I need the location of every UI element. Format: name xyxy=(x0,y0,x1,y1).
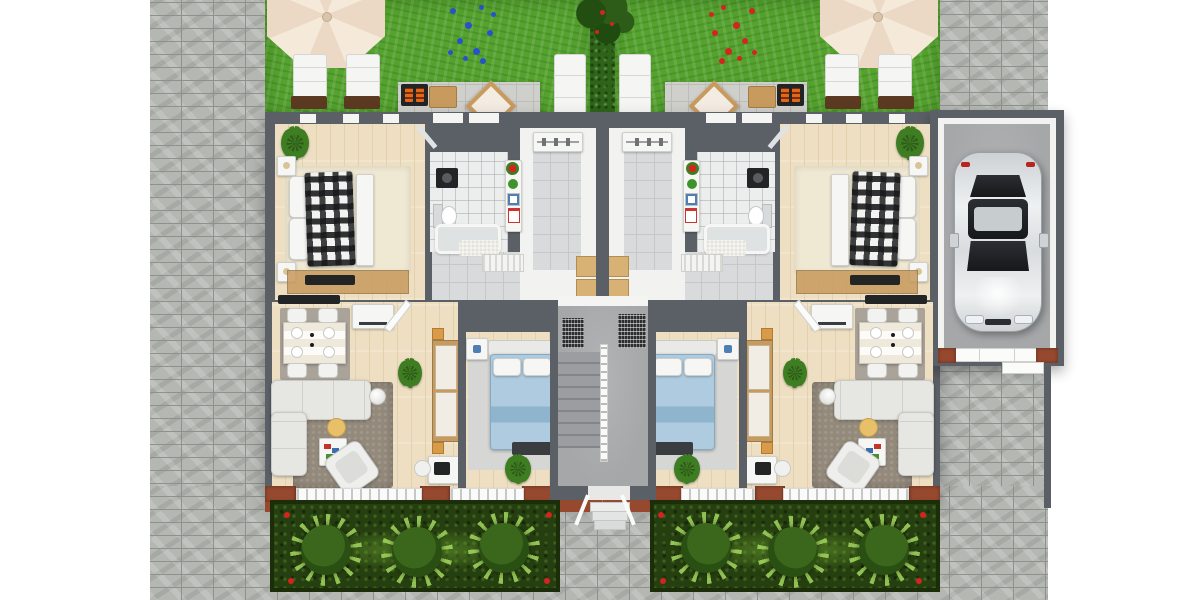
wardrobe-door xyxy=(435,345,457,390)
dining-chair xyxy=(287,308,307,323)
car-mirror xyxy=(1039,233,1049,248)
corner-sofa-leg xyxy=(271,412,307,476)
lounger-base xyxy=(878,96,914,109)
window-sill xyxy=(889,114,905,123)
storage-box xyxy=(761,328,773,340)
patio-door-frame xyxy=(469,113,499,123)
car-headlight xyxy=(1014,315,1033,324)
wood-side-table xyxy=(748,86,776,108)
potted-plant xyxy=(783,358,807,388)
plaid-blanket-bed xyxy=(304,171,355,267)
topiary-bush xyxy=(768,527,818,577)
accent-flower xyxy=(660,578,666,584)
lounger-base xyxy=(825,96,861,109)
stone-paving-top-right xyxy=(938,0,1048,118)
tv xyxy=(850,275,900,285)
table-lamp xyxy=(283,162,290,169)
armchair-cushion xyxy=(835,449,871,485)
dining-chair xyxy=(287,363,307,378)
garage xyxy=(930,110,1064,366)
bed-pillow xyxy=(896,218,916,260)
place-setting xyxy=(870,327,882,339)
accent-flower xyxy=(284,512,290,518)
place-setting xyxy=(902,327,914,339)
stair-handrail xyxy=(600,344,608,462)
laptop xyxy=(434,462,450,475)
wardrobe-shelf xyxy=(622,132,672,152)
window-sill xyxy=(300,114,316,123)
sun-lounger xyxy=(293,54,327,100)
desk-chair xyxy=(414,460,431,477)
accent-flower xyxy=(288,578,294,584)
car-roof-panel xyxy=(974,207,1022,231)
dining-chair xyxy=(898,363,918,378)
tomato-pot xyxy=(686,162,699,175)
dining-chair xyxy=(318,363,338,378)
storage-box xyxy=(432,442,444,454)
toilet-bowl xyxy=(748,206,764,226)
washing-machine xyxy=(436,168,458,188)
flower xyxy=(487,30,493,36)
flower xyxy=(491,12,496,17)
book xyxy=(324,444,331,449)
table-lamp xyxy=(915,162,922,169)
party-wall xyxy=(596,112,609,308)
bed-foot-bench xyxy=(356,174,374,266)
utensil-box xyxy=(685,193,698,206)
window-sill xyxy=(846,114,862,123)
nightstand xyxy=(717,338,739,360)
barbecue-grill xyxy=(401,84,428,106)
book xyxy=(874,444,881,449)
place-setting xyxy=(323,346,335,358)
blue-decor xyxy=(724,345,732,353)
car-windshield xyxy=(967,241,1029,271)
desk-chair xyxy=(774,460,791,477)
slatted-bench xyxy=(681,254,723,272)
potted-plant xyxy=(505,454,531,484)
tree xyxy=(572,0,636,48)
parasol-pole xyxy=(873,12,883,22)
flower xyxy=(473,48,480,55)
flower xyxy=(719,58,725,64)
wardrobe-shelf xyxy=(533,132,583,152)
topiary-bush xyxy=(479,523,529,573)
candle xyxy=(891,343,895,347)
nightstand xyxy=(277,156,296,176)
washer-door xyxy=(442,173,452,183)
wardrobe-door xyxy=(435,392,457,437)
barbecue-grill xyxy=(777,84,804,106)
bed-pillow xyxy=(654,358,682,376)
hedge-blossom xyxy=(600,10,605,15)
place-setting xyxy=(323,327,335,339)
wardrobe-door xyxy=(748,345,770,390)
front-garden-bed-left xyxy=(270,500,560,592)
place-setting xyxy=(291,346,303,358)
hanger xyxy=(659,138,663,146)
topiary-bush xyxy=(859,525,909,575)
boundary-fence xyxy=(1044,366,1051,508)
patio-door-frame xyxy=(706,113,736,123)
slatted-bench xyxy=(482,254,524,272)
recipe-card xyxy=(685,208,697,223)
tall-wardrobe xyxy=(745,340,773,442)
window-sill xyxy=(383,114,399,123)
car-roof xyxy=(968,199,1028,239)
armchair-cushion xyxy=(333,449,369,485)
car-grille xyxy=(985,319,1011,325)
entry-door-leaf xyxy=(606,256,629,277)
bed-pillow xyxy=(684,358,712,376)
grill-flames xyxy=(792,88,800,102)
side-table-yellow xyxy=(327,418,346,437)
hanger xyxy=(647,138,651,146)
topiary-bush xyxy=(681,523,731,573)
sun-lounger xyxy=(825,54,859,100)
entry-hall-tile xyxy=(624,142,672,270)
utensil-box xyxy=(507,193,520,206)
island-handles xyxy=(818,322,846,325)
garage-door-pier xyxy=(1036,348,1058,363)
dining-chair xyxy=(867,363,887,378)
hedge-blossom xyxy=(595,30,599,34)
flower xyxy=(448,50,453,55)
place-setting xyxy=(870,346,882,358)
potted-plant xyxy=(398,358,422,388)
corner-sofa-leg xyxy=(898,412,934,476)
doormat xyxy=(562,318,584,348)
lounger-base xyxy=(291,96,327,109)
flower xyxy=(465,22,472,29)
garage-door-pier xyxy=(938,348,956,363)
flower xyxy=(463,56,468,61)
flower xyxy=(712,30,718,36)
car-taillight xyxy=(1026,162,1035,167)
accent-flower xyxy=(916,578,922,584)
flower xyxy=(479,5,484,10)
potted-plant xyxy=(896,126,924,160)
front-garden-bed-right xyxy=(650,500,940,592)
hanger xyxy=(635,138,639,146)
flower xyxy=(737,56,742,61)
side-table-yellow xyxy=(859,418,878,437)
garage-gate xyxy=(1002,362,1044,374)
storage-box xyxy=(432,328,444,340)
plaid-blanket-bed xyxy=(849,171,900,267)
flower xyxy=(725,48,732,55)
exterior-step xyxy=(594,520,626,530)
bed-pillow xyxy=(523,358,551,376)
laptop xyxy=(755,462,771,475)
flower xyxy=(733,22,740,29)
stairwell xyxy=(550,296,656,528)
tv-sideboard xyxy=(865,295,927,304)
pendant-lamp xyxy=(819,388,836,405)
grill-flames xyxy=(405,88,413,102)
tv xyxy=(305,275,355,285)
potted-plant xyxy=(674,454,700,484)
flower xyxy=(742,38,748,44)
washing-machine xyxy=(747,168,769,188)
hanger xyxy=(554,138,558,146)
accent-flower xyxy=(544,578,550,584)
tomato-pot xyxy=(506,162,519,175)
topiary-bush xyxy=(301,525,351,575)
car-taillight xyxy=(961,162,970,167)
entry-hall-tile xyxy=(533,142,581,270)
candle xyxy=(310,343,314,347)
partition-wall xyxy=(458,302,466,490)
car-rear-window xyxy=(970,175,1026,197)
nightstand xyxy=(909,156,928,176)
flower xyxy=(752,50,757,55)
wardrobe-door xyxy=(748,392,770,437)
dining-chair xyxy=(898,308,918,323)
tv-sideboard xyxy=(278,295,340,304)
lounger-base xyxy=(344,96,380,109)
doormat xyxy=(618,314,646,348)
garden-right xyxy=(615,0,940,118)
floorplan-scene xyxy=(0,0,1200,600)
grill-flames xyxy=(781,88,789,102)
bed-pillow xyxy=(493,358,521,376)
place-setting xyxy=(902,346,914,358)
tall-wardrobe xyxy=(432,340,460,442)
flower xyxy=(457,38,463,44)
pendant-lamp xyxy=(369,388,386,405)
recipe-card xyxy=(508,208,520,223)
car-headlight xyxy=(965,315,984,324)
sun-lounger xyxy=(346,54,380,100)
patio-door-frame xyxy=(433,113,463,123)
patio-door-frame xyxy=(742,113,772,123)
grill-flames xyxy=(416,88,424,102)
candle xyxy=(891,333,895,337)
bed-foot-bench xyxy=(831,174,849,266)
garden-left xyxy=(265,0,590,118)
parasol-pole xyxy=(322,12,332,22)
dining-chair xyxy=(867,308,887,323)
nightstand xyxy=(466,338,488,360)
flower xyxy=(450,8,456,14)
flower xyxy=(721,5,726,10)
blue-decor xyxy=(473,345,481,353)
window-sill xyxy=(343,114,359,123)
topiary-bush xyxy=(392,527,442,577)
wood-side-table xyxy=(429,86,457,108)
car-hood-highlight xyxy=(973,277,1023,317)
flower xyxy=(709,12,714,17)
herb-plant xyxy=(508,179,518,189)
hanger xyxy=(542,138,546,146)
window-sill xyxy=(806,114,822,123)
storage-box xyxy=(761,442,773,454)
candle xyxy=(310,333,314,337)
flower xyxy=(749,8,755,14)
sun-lounger xyxy=(878,54,912,100)
potted-plant xyxy=(281,126,309,160)
accent-flower xyxy=(920,512,926,518)
accent-flower xyxy=(658,512,664,518)
partition-wall xyxy=(739,302,747,490)
stairwell-wall xyxy=(550,300,558,494)
place-setting xyxy=(291,327,303,339)
staircase xyxy=(558,352,602,448)
dining-chair xyxy=(318,308,338,323)
hedge-blossom xyxy=(610,22,614,26)
toilet-bowl xyxy=(441,206,457,226)
stairwell-wall xyxy=(648,300,656,494)
hanger xyxy=(566,138,570,146)
car xyxy=(954,152,1042,332)
island-handles xyxy=(359,322,387,325)
car-mirror xyxy=(949,233,959,248)
stone-paving-right xyxy=(938,356,1048,488)
herb-plant xyxy=(687,179,697,189)
washer-door xyxy=(753,173,763,183)
flower xyxy=(480,58,486,64)
